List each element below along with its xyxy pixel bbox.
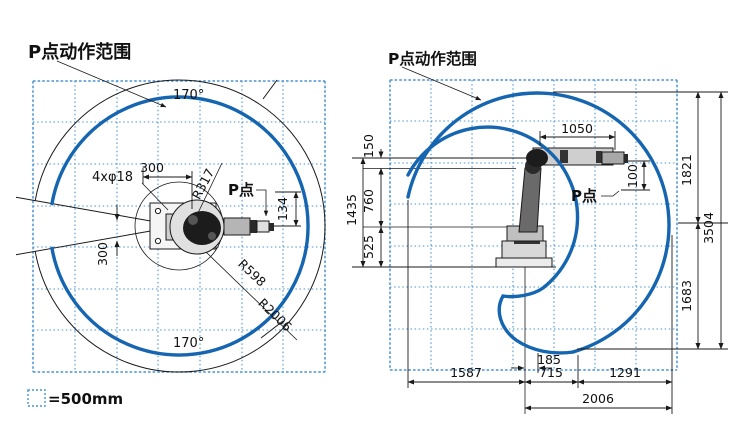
tool-flange	[624, 154, 628, 163]
tool-cap	[269, 223, 274, 231]
dim-134-label: 134	[275, 197, 290, 221]
left-angle-bottom-label: 170°	[173, 336, 204, 351]
r2006-label: R2006	[255, 295, 295, 334]
wrist-tube	[257, 221, 269, 232]
left-wedge-upper-line	[16, 197, 150, 221]
dim-2006-label: 2006	[582, 391, 614, 406]
diagram-canvas: 170° 170° 300 300 4xφ18 R317 R598 R2006 …	[0, 0, 738, 429]
left-angle-top-label: 170°	[173, 88, 204, 103]
angle-tick-top	[263, 80, 277, 99]
right-title-leader	[402, 67, 481, 100]
arm-link	[224, 218, 250, 235]
swivel-detail	[188, 215, 198, 225]
swivel-detail	[208, 232, 216, 240]
wrist	[602, 152, 624, 164]
left-p-point-leader	[256, 190, 266, 216]
dim-1291-label: 1291	[609, 365, 641, 380]
dim-1435-label: 1435	[344, 194, 359, 226]
left-title: P点动作范围	[28, 41, 131, 63]
left-p-point-label: P点	[228, 181, 254, 199]
left-title-leader	[57, 61, 166, 107]
legend-grid-swatch	[28, 390, 45, 406]
bolt-hole	[155, 208, 160, 213]
bolt-hole	[155, 238, 160, 243]
dim-1821-label: 1821	[679, 154, 694, 186]
dim-300-width-label: 300	[140, 160, 164, 175]
dim-150-label: 150	[361, 134, 376, 158]
arm-band	[560, 150, 568, 163]
dim-1587-label: 1587	[450, 365, 482, 380]
dim-185-label: 185	[537, 352, 561, 367]
right-p-point-label: P点	[571, 187, 597, 205]
base-flange	[496, 258, 552, 267]
robot-range-diagram: 170° 170° 300 300 4xφ18 R317 R598 R2006 …	[0, 0, 738, 429]
dim-100-label: 100	[625, 164, 640, 188]
right-envelope-outer-arc	[408, 93, 669, 352]
shoulder-cover	[526, 149, 548, 167]
swivel-core	[183, 211, 221, 245]
dim-300-slot-label: 300	[95, 242, 110, 266]
dim-1050-label: 1050	[561, 121, 593, 136]
left-robot-top-view	[150, 200, 274, 254]
dim-1683-label: 1683	[679, 280, 694, 312]
arm-band	[596, 151, 602, 163]
lower-arm	[519, 168, 541, 232]
legend-label: =500mm	[48, 390, 123, 408]
right-title: P点动作范围	[388, 49, 477, 68]
bolt-holes-label: 4xφ18	[92, 170, 133, 185]
arm-band	[250, 220, 257, 233]
dim-3504-label: 3504	[701, 212, 716, 244]
r598-label: R598	[235, 256, 269, 289]
left-wedge-lower-line	[16, 231, 150, 255]
dim-715-label: 715	[539, 365, 563, 380]
right-p-point-leader	[601, 191, 619, 196]
